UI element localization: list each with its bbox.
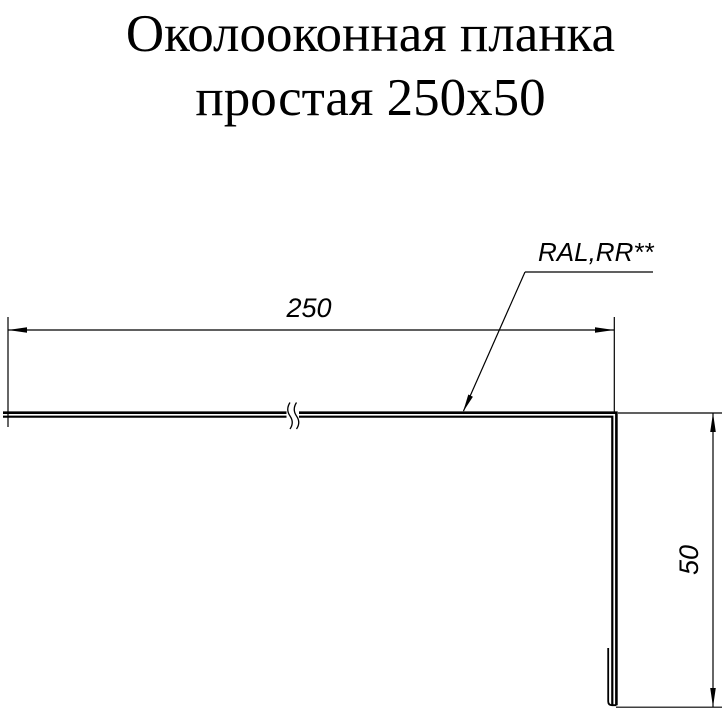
width-dimension-label: 250 [285, 293, 331, 323]
leader-line-slant [464, 272, 526, 411]
coating-label: RAL,RR** [538, 237, 654, 267]
arrowhead-width-right [595, 327, 614, 333]
profile-drawing: 250 50 RAL,RR** [0, 0, 727, 712]
arrowhead-width-left [8, 327, 27, 333]
arrowhead-height-top [710, 413, 716, 432]
profile-outer-line [3, 413, 616, 706]
leader-arrowhead [463, 395, 473, 413]
profile-inner-line [3, 417, 612, 706]
height-dimension-label: 50 [674, 545, 704, 575]
drawing-canvas: Околооконная планка простая 250x50 250 5… [0, 0, 727, 712]
arrowhead-height-bottom [710, 688, 716, 707]
